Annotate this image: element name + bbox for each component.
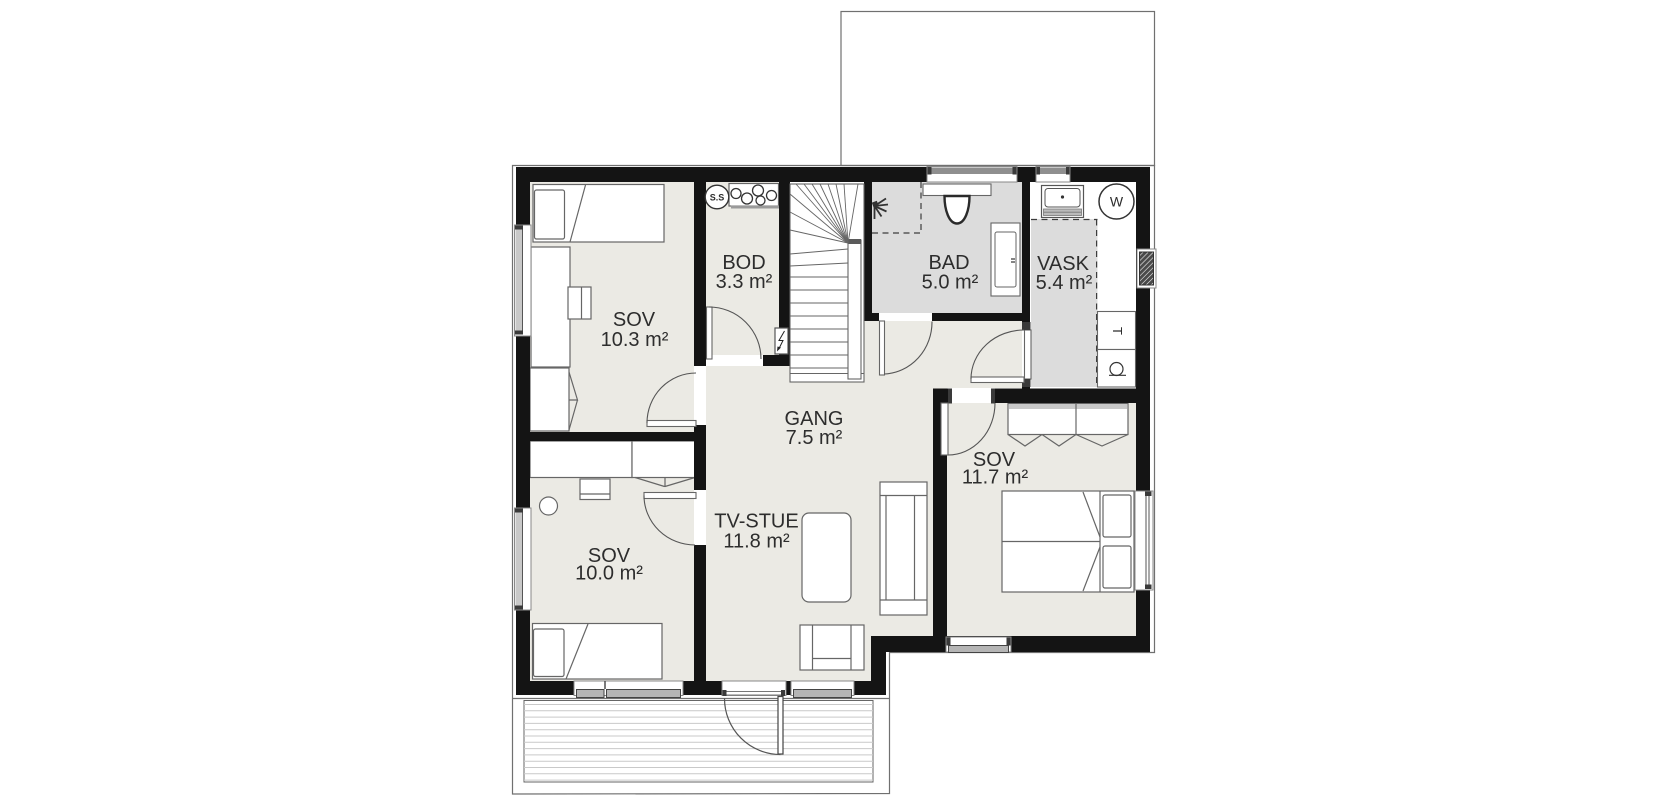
svg-text:SOV: SOV	[613, 309, 656, 331]
svg-text:5.0 m²: 5.0 m²	[922, 272, 979, 294]
svg-text:10.3 m²: 10.3 m²	[601, 329, 669, 351]
svg-text:TV-STUE: TV-STUE	[714, 511, 798, 533]
svg-text:7.5 m²: 7.5 m²	[786, 427, 843, 449]
svg-text:S.S: S.S	[710, 193, 725, 203]
svg-text:W: W	[1110, 194, 1124, 210]
svg-text:5.4 m²: 5.4 m²	[1036, 272, 1093, 294]
svg-text:11.7 m²: 11.7 m²	[962, 467, 1029, 489]
svg-text:3.3 m²: 3.3 m²	[716, 271, 773, 293]
svg-text:11.8 m²: 11.8 m²	[723, 531, 790, 553]
svg-text:T: T	[1110, 327, 1125, 335]
svg-text:10.0 m²: 10.0 m²	[575, 563, 643, 585]
